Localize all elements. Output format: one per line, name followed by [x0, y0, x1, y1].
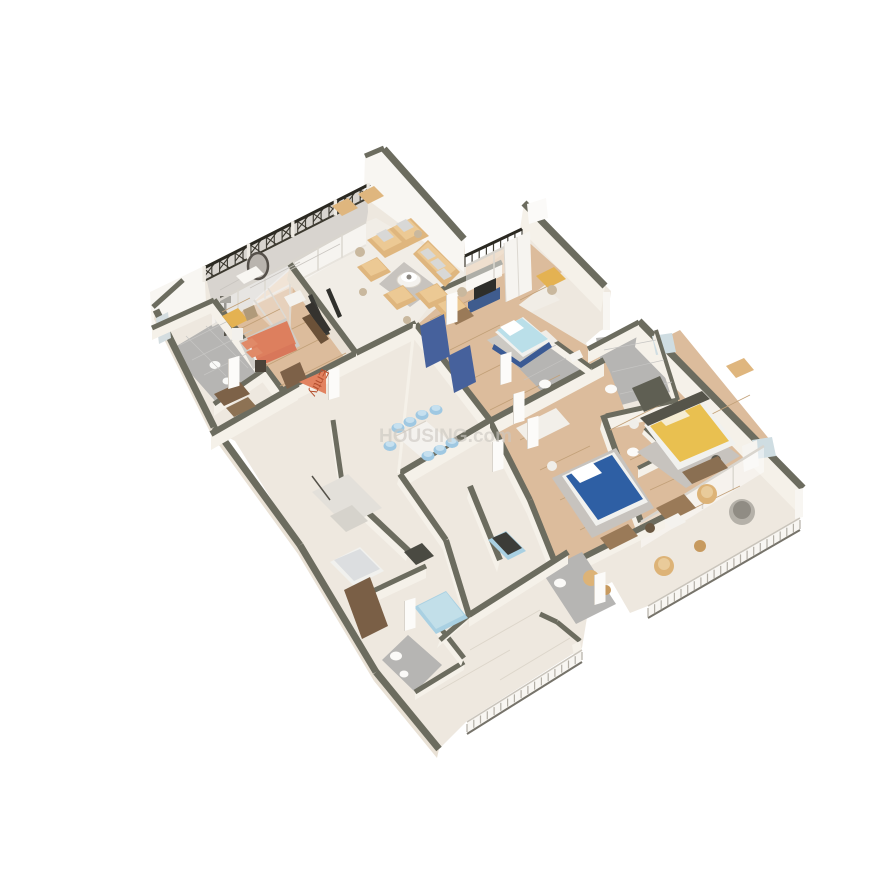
svg-text:HOUSING.com: HOUSING.com: [379, 426, 512, 447]
